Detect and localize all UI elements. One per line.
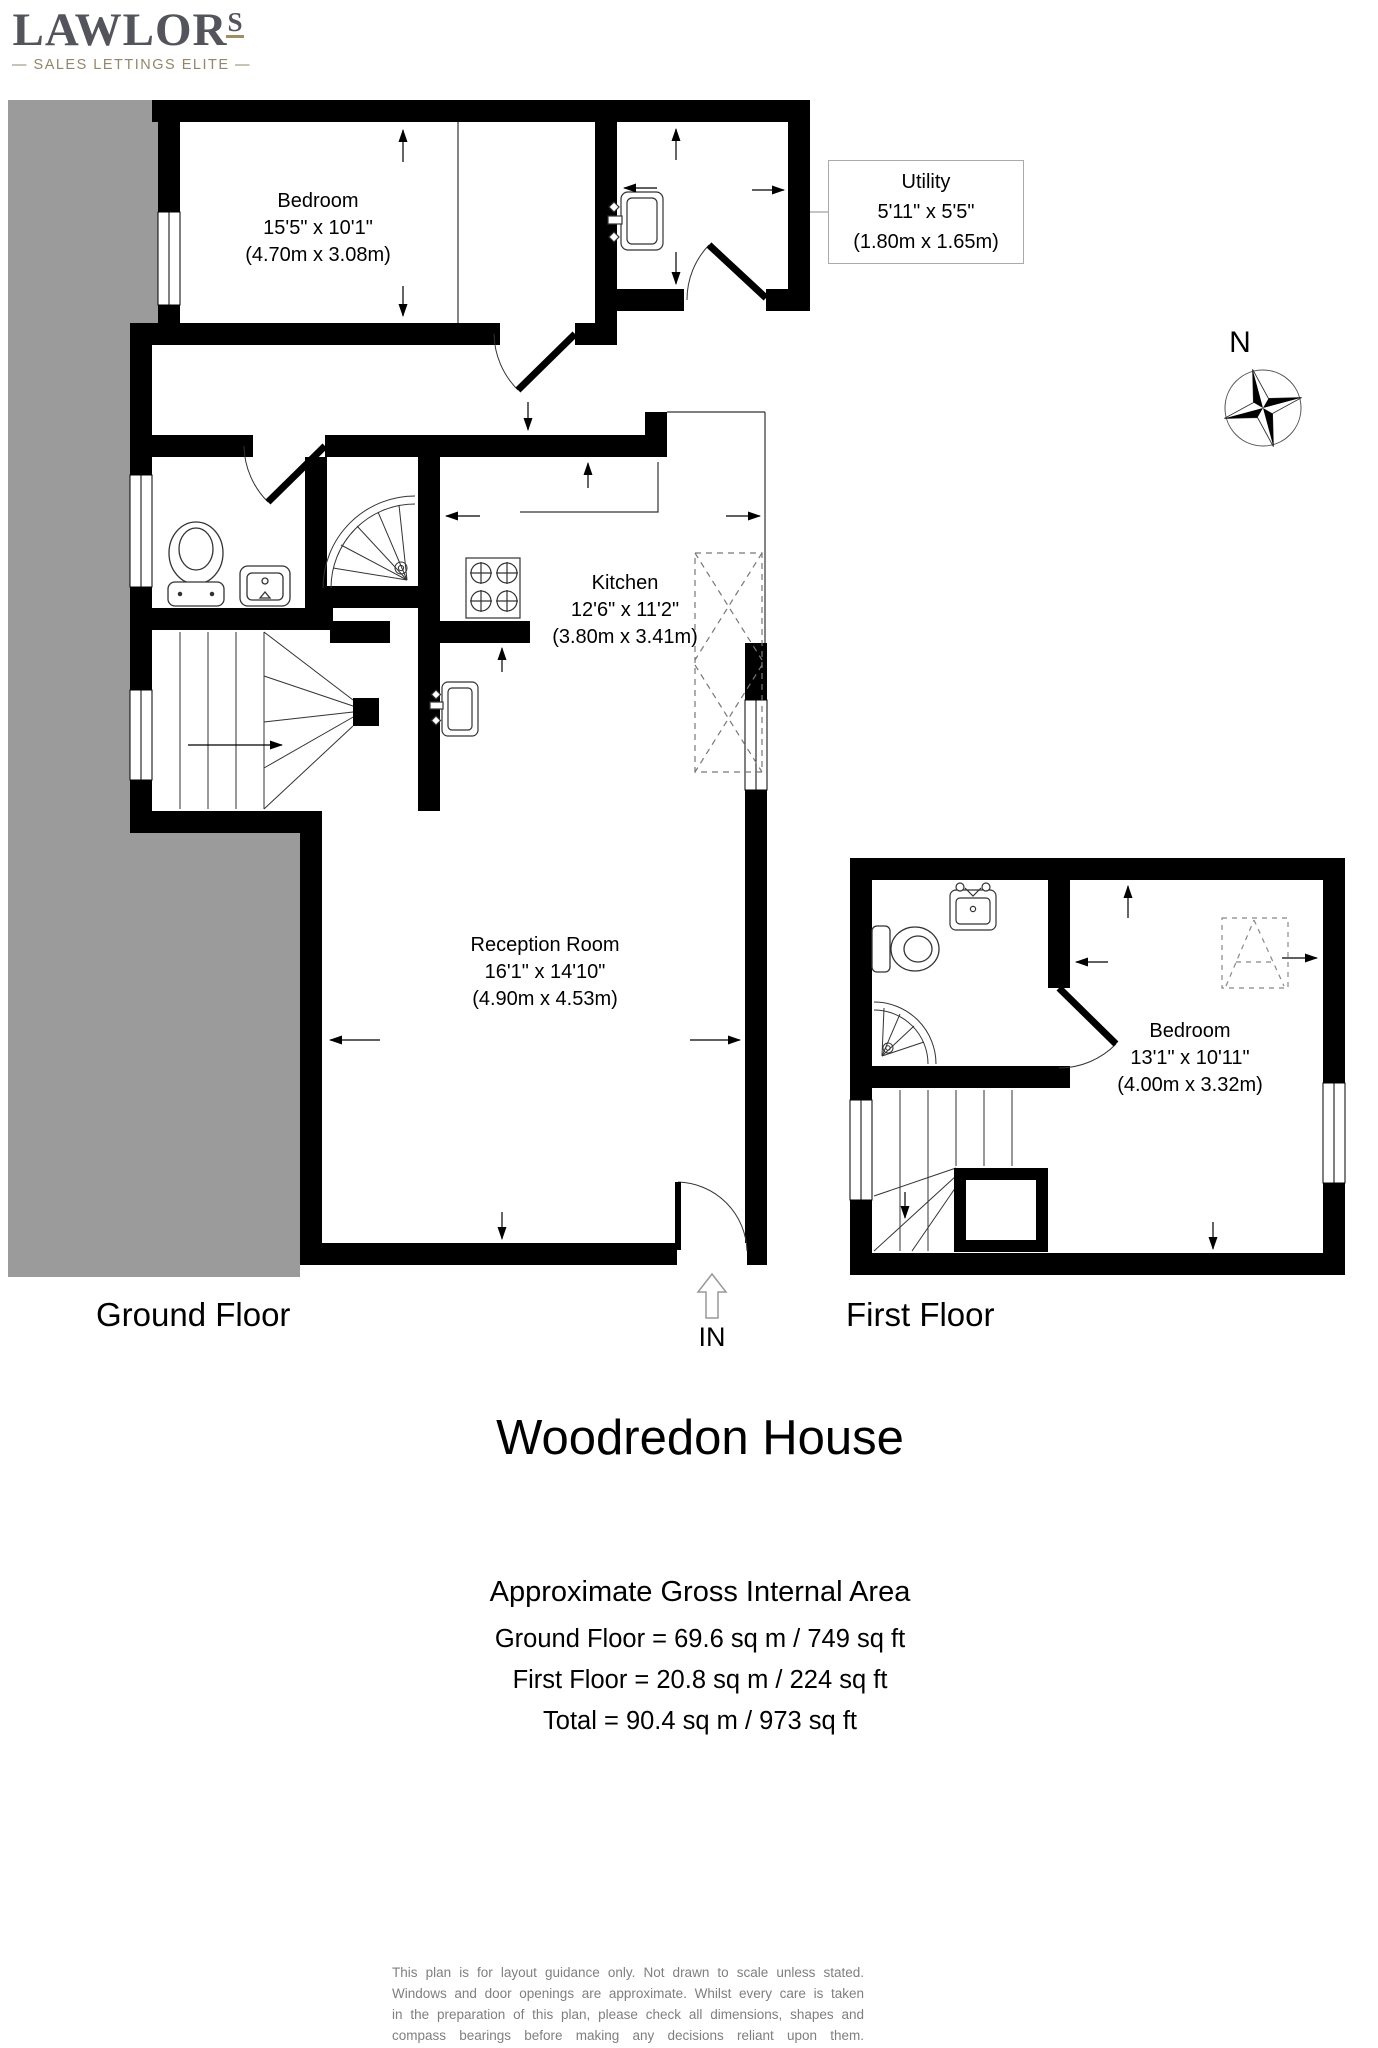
area-heading: Approximate Gross Internal Area [200,1576,1200,1609]
agency-logo-wordmark: LAWLORS [12,6,244,55]
entrance-in-label: IN [682,1322,742,1353]
neighbour-building-shading [8,100,300,1277]
disclaimer-line: compass bearings before making any decis… [392,2025,864,2046]
first-floor-label: First Floor [846,1296,995,1334]
room-name: Reception Room [425,932,665,959]
room-name: Bedroom [198,188,438,215]
area-ground-floor: Ground Floor = 69.6 sq m / 749 sq ft [200,1619,1200,1660]
sink-icon-ff [950,883,996,930]
staircase-gf [180,632,379,809]
dimension-arrows-gf [330,129,784,1239]
staircase-ff [874,1090,1042,1251]
compass-north-label: N [1220,326,1260,360]
room-label-utility: Utility 5'11" x 5'5" (1.80m x 1.65m) [828,160,1024,264]
room-dims-metric: (4.90m x 4.53m) [425,986,665,1013]
room-label-reception: Reception Room 16'1" x 14'10" (4.90m x 4… [425,932,665,1013]
gross-internal-area-block: Approximate Gross Internal Area Ground F… [200,1576,1200,1742]
wardrobe-dashed-ff [1222,918,1288,988]
disclaimer-line: This plan is for layout guidance only. N… [392,1962,864,1983]
shower-icon-ff [874,1002,936,1064]
room-dims-imperial: 12'6" x 11'2" [505,597,745,624]
toilet-icon-ff [872,926,939,972]
sink-icon-gf-bath [240,566,290,606]
entrance-arrow-icon [698,1274,726,1318]
room-dims-imperial: 13'1" x 10'11" [1070,1045,1310,1072]
disclaimer-line: in the preparation of this plan, please … [392,2004,864,2025]
room-dims-imperial: 16'1" x 14'10" [425,959,665,986]
room-label-gf-bedroom: Bedroom 15'5" x 10'1" (4.70m x 3.08m) [198,188,438,269]
shower-icon-gf [323,496,415,588]
compass-icon [1224,369,1301,446]
room-label-ff-bedroom: Bedroom 13'1" x 10'11" (4.00m x 3.32m) [1070,1018,1310,1099]
room-dims-imperial: 5'11" x 5'5" [829,197,1023,227]
agency-logo-tagline: — SALES LETTINGS ELITE — [12,57,244,73]
area-total: Total = 90.4 sq m / 973 sq ft [200,1701,1200,1742]
room-dims-metric: (4.00m x 3.32m) [1070,1072,1310,1099]
agency-logo-superscript: S [227,8,243,36]
ground-floor-doors [244,245,766,1251]
room-name: Utility [829,167,1023,197]
room-label-kitchen: Kitchen 12'6" x 11'2" (3.80m x 3.41m) [505,570,745,651]
ground-floor-label: Ground Floor [96,1296,290,1334]
room-name: Kitchen [505,570,745,597]
logo-underline-accent [226,35,244,38]
disclaimer-line: Windows and door openings are approximat… [392,1983,864,2004]
room-dims-metric: (4.70m x 3.08m) [198,242,438,269]
room-dims-imperial: 15'5" x 10'1" [198,215,438,242]
agency-logo: LAWLORS — SALES LETTINGS ELITE — [12,6,244,73]
first-floor-windows [850,1083,1345,1200]
toilet-icon-gf [168,522,224,606]
disclaimer-text: This plan is for layout guidance only. N… [392,1962,864,2046]
room-dims-metric: (1.80m x 1.65m) [829,227,1023,257]
room-dims-metric: (3.80m x 3.41m) [505,624,745,651]
area-first-floor: First Floor = 20.8 sq m / 224 sq ft [200,1660,1200,1701]
property-title: Woodredon House [200,1410,1200,1466]
room-name: Bedroom [1070,1018,1310,1045]
